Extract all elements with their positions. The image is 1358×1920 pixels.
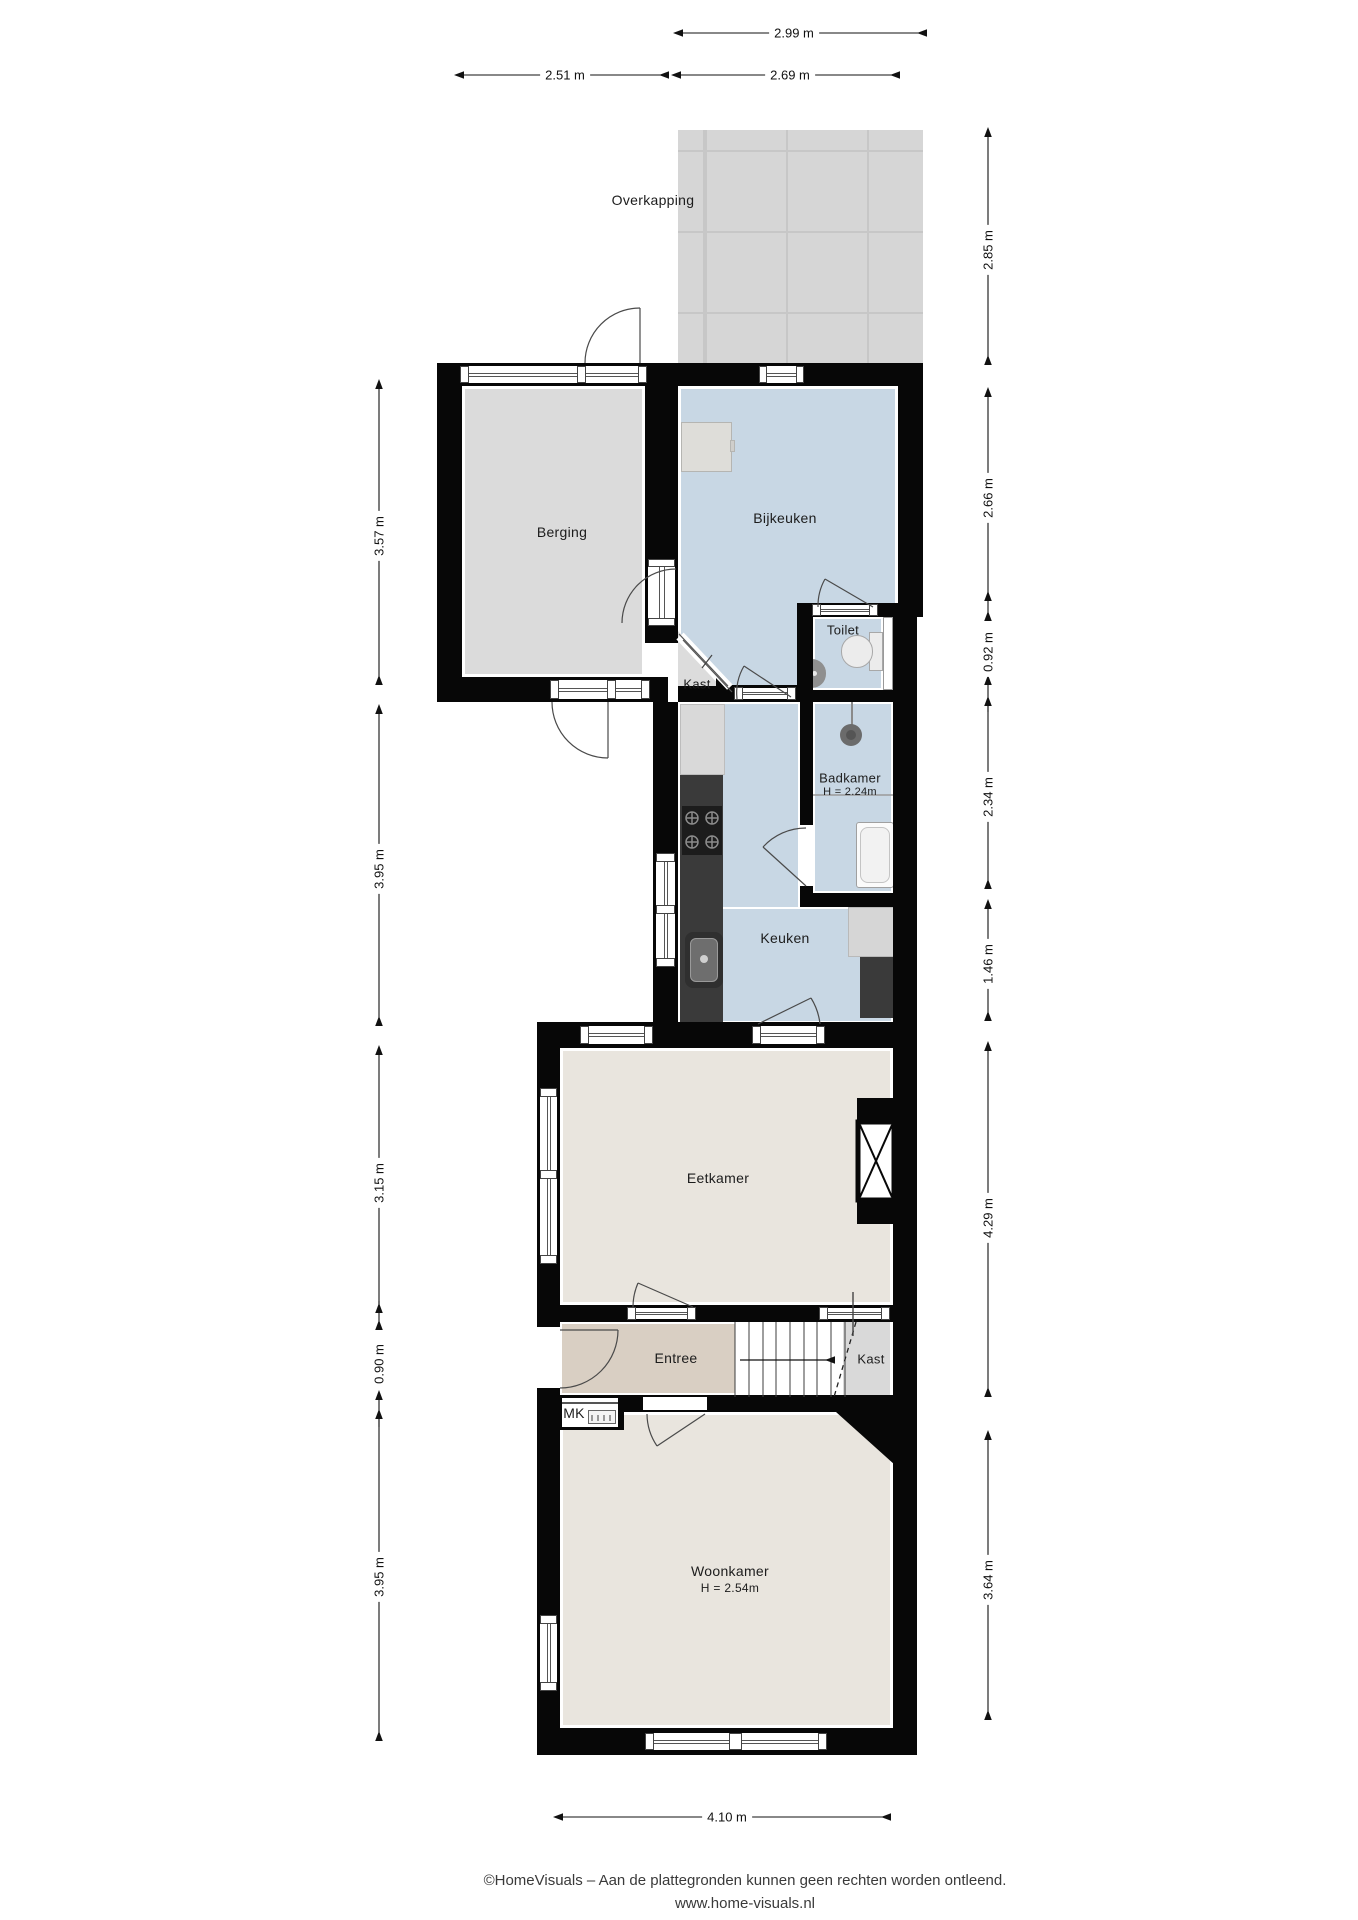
window-berging-top <box>462 366 647 383</box>
label-keuken: Keuken <box>760 930 809 946</box>
dim-bottom: 4.10 m <box>702 1810 752 1825</box>
window-cap <box>729 1733 742 1750</box>
dim-left-4: 0.90 m <box>372 1339 387 1389</box>
dim-left-5: 3.95 m <box>372 1552 387 1602</box>
footer-url: www.home-visuals.nl <box>0 1895 1358 1912</box>
overkapping-area <box>678 130 923 363</box>
window-cap <box>656 905 675 914</box>
window-cap <box>812 604 821 616</box>
gas-hob <box>682 806 722 855</box>
window-cap <box>734 687 743 700</box>
window-cap <box>540 1088 557 1097</box>
window-cap <box>787 687 796 700</box>
label-eetkamer: Eetkamer <box>687 1170 749 1186</box>
window-cap <box>819 1307 828 1320</box>
footer-copyright: ©HomeVisuals – Aan de plattegronden kunn… <box>0 1872 1358 1889</box>
door-badkamer-opening <box>800 825 813 886</box>
window-cap <box>550 680 559 699</box>
dim-top-right: 2.69 m <box>765 68 815 83</box>
wall-berging-left <box>437 363 462 702</box>
window-cap <box>796 366 804 383</box>
room-entree <box>560 1322 737 1395</box>
door-bijkeuken-keuken <box>737 688 793 699</box>
dim-right-6: 4.29 m <box>981 1193 996 1243</box>
door-keuken-eetkamer <box>755 1026 822 1044</box>
label-woonkamer-height: H = 2.54m <box>701 1581 759 1595</box>
window-cap <box>644 1026 653 1044</box>
dim-top-total: 2.99 m <box>769 26 819 41</box>
kitchen-fridge <box>848 907 897 957</box>
opening-eetkamer-kast <box>822 1308 887 1319</box>
door-berging-bijkeuken <box>648 562 675 623</box>
window-cap <box>627 1307 636 1320</box>
window-cap <box>818 1733 827 1750</box>
label-kast-bijkeuken: Kast <box>683 677 710 692</box>
kitchen-cabinet <box>680 704 725 775</box>
window-cap <box>580 1026 589 1044</box>
dim-left-1: 3.57 m <box>372 511 387 561</box>
bijkeuken-worktop <box>681 422 732 472</box>
dim-left-2: 3.95 m <box>372 844 387 894</box>
label-overkapping: Overkapping <box>612 192 695 208</box>
door-toilet <box>815 605 875 615</box>
label-kast-trap: Kast <box>857 1352 884 1367</box>
meter-panel <box>588 1410 616 1424</box>
floorplan-page: Overkapping Berging Bijkeuken Toilet Kas… <box>0 0 1358 1920</box>
label-berging: Berging <box>537 524 587 540</box>
wall-shaft-top-stub <box>857 1098 893 1122</box>
window-cap <box>869 604 878 616</box>
door-eetkamer-entree <box>630 1308 693 1319</box>
label-woonkamer: Woonkamer <box>691 1563 769 1579</box>
label-entree: Entree <box>654 1350 697 1366</box>
window-cap <box>638 366 647 383</box>
wall-right-outer <box>893 603 917 1755</box>
window-cap <box>759 366 767 383</box>
wall-badkamer-left-upper <box>800 702 813 825</box>
door-entree-woonkamer <box>643 1397 707 1410</box>
dim-right-5: 1.46 m <box>981 939 996 989</box>
window-cap <box>656 958 675 967</box>
door-window-berging-bottom <box>552 680 650 699</box>
wall-toilet-left <box>797 603 813 702</box>
window-cap <box>656 853 675 862</box>
dim-right-1: 2.85 m <box>981 225 996 275</box>
label-badkamer-height: H = 2.24m <box>823 786 877 798</box>
window-cap <box>577 366 586 383</box>
window-cap <box>648 559 675 567</box>
dim-right-2: 2.66 m <box>981 473 996 523</box>
label-toilet: Toilet <box>827 623 859 638</box>
window-cap <box>540 1682 557 1691</box>
window-cap <box>540 1615 557 1624</box>
label-badkamer: Badkamer <box>819 771 881 786</box>
window-cap <box>881 1307 890 1320</box>
window-eetkamer-top <box>583 1026 650 1044</box>
window-cap <box>645 1733 654 1750</box>
toilet-duct <box>883 617 893 690</box>
dim-right-4: 2.34 m <box>981 772 996 822</box>
wall-shaft-bottom-stub <box>857 1200 893 1224</box>
label-mk: MK <box>563 1405 585 1421</box>
wall-bijkeuken-right <box>898 363 923 603</box>
window-cap <box>460 366 469 383</box>
window-cap <box>687 1307 696 1320</box>
front-door-opening <box>537 1327 560 1388</box>
dim-top-left: 2.51 m <box>540 68 590 83</box>
window-cap <box>816 1026 825 1044</box>
window-cap <box>540 1170 557 1179</box>
label-bijkeuken: Bijkeuken <box>753 510 816 526</box>
window-woonkamer-left <box>540 1618 557 1688</box>
dim-right-3: 0.92 m <box>981 627 996 677</box>
window-cap <box>752 1026 761 1044</box>
dim-left-3: 3.15 m <box>372 1158 387 1208</box>
toilet-bowl <box>841 635 873 668</box>
window-cap <box>607 680 616 699</box>
dim-right-7: 3.64 m <box>981 1555 996 1605</box>
staircase-area <box>735 1322 845 1397</box>
bathtub-inner <box>860 827 890 883</box>
window-cap <box>641 680 650 699</box>
window-cap <box>648 618 675 626</box>
kitchen-sink-tap <box>700 955 708 963</box>
bijkeuken-tap <box>730 440 735 452</box>
window-cap <box>540 1255 557 1264</box>
wall-badkamer-bottom <box>800 893 917 907</box>
kitchen-counter-right <box>860 957 895 1018</box>
